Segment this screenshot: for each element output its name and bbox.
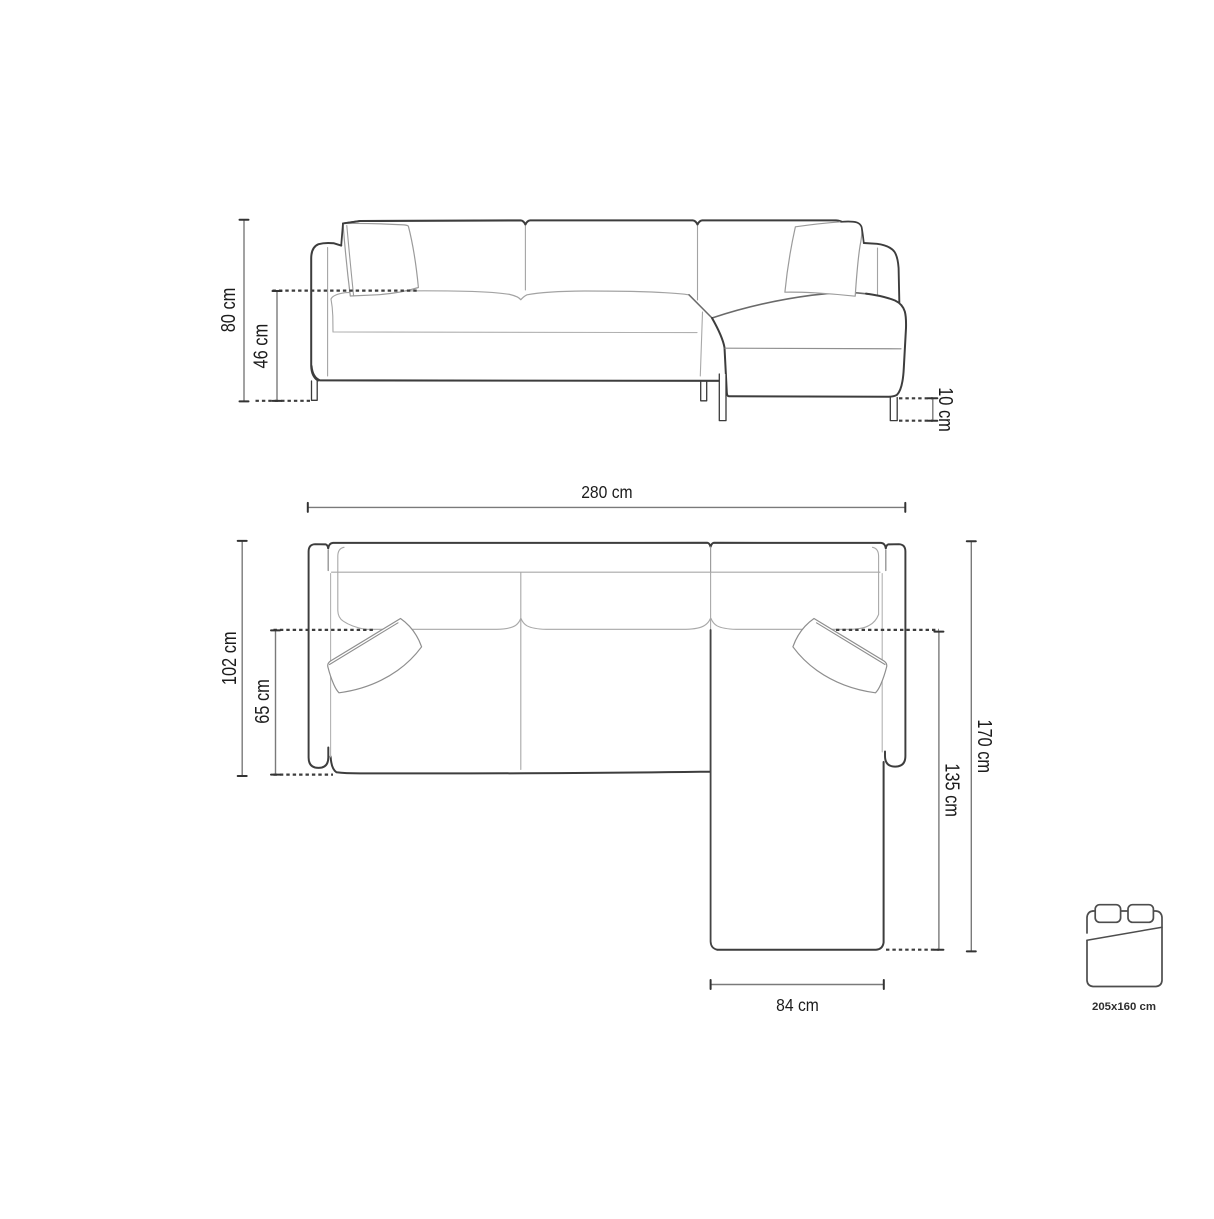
svg-text:80 cm: 80 cm (216, 288, 239, 333)
svg-text:135 cm: 135 cm (941, 763, 964, 817)
svg-text:65 cm: 65 cm (250, 679, 273, 724)
svg-text:10 cm: 10 cm (935, 387, 958, 432)
svg-text:102 cm: 102 cm (218, 631, 241, 685)
svg-text:84 cm: 84 cm (776, 995, 819, 1015)
svg-text:280 cm: 280 cm (581, 482, 632, 502)
svg-text:205x160 cm: 205x160 cm (1092, 1001, 1156, 1013)
svg-text:46 cm: 46 cm (249, 324, 272, 369)
svg-text:170 cm: 170 cm (974, 719, 997, 773)
